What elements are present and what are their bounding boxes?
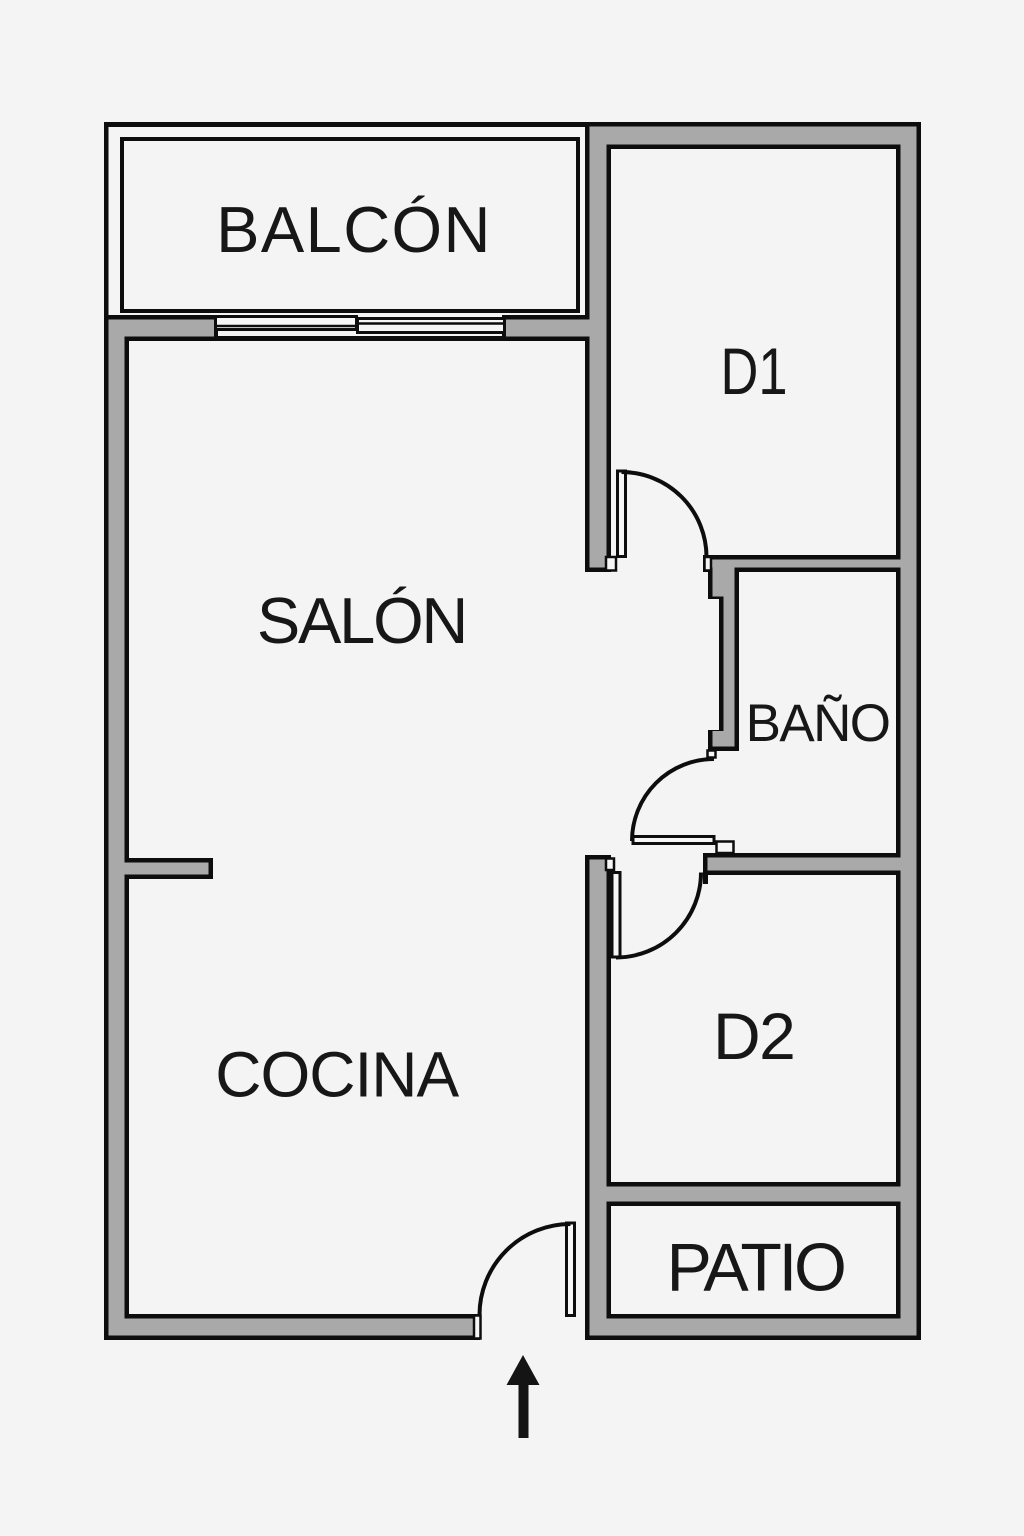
svg-text:D2: D2 bbox=[713, 999, 794, 1073]
svg-text:BALCÓN: BALCÓN bbox=[216, 193, 492, 266]
svg-text:D1: D1 bbox=[721, 334, 788, 408]
svg-text:PATIO: PATIO bbox=[667, 1230, 844, 1306]
svg-text:SALÓN: SALÓN bbox=[257, 584, 466, 657]
svg-text:BAÑO: BAÑO bbox=[746, 694, 890, 753]
svg-text:COCINA: COCINA bbox=[215, 1039, 459, 1111]
